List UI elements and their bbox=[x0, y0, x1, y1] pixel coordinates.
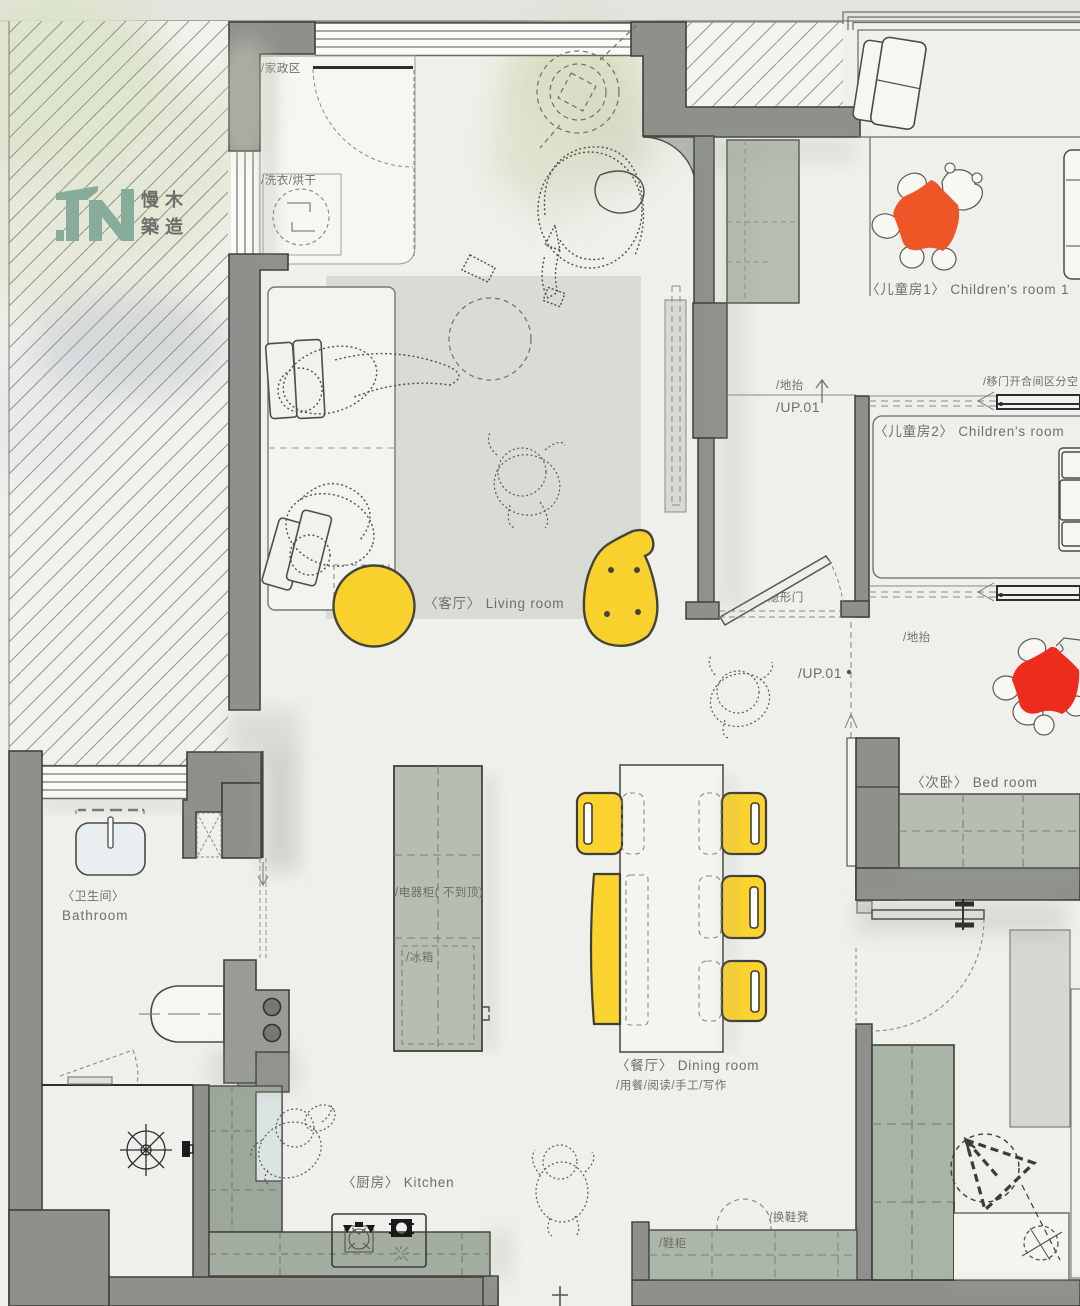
svg-text:〈儿童房2〉 Children's room: 〈儿童房2〉 Children's room bbox=[874, 423, 1064, 439]
svg-text:/移门开合间区分空: /移门开合间区分空 bbox=[983, 374, 1079, 388]
svg-text:Bathroom: Bathroom bbox=[62, 908, 129, 923]
svg-text:/鞋柜: /鞋柜 bbox=[659, 1236, 687, 1250]
svg-text:築造: 築造 bbox=[140, 216, 189, 237]
svg-text:〈客厅〉 Living room: 〈客厅〉 Living room bbox=[424, 595, 564, 611]
svg-text:/换鞋凳: /换鞋凳 bbox=[769, 1210, 809, 1224]
svg-text:/家政区: /家政区 bbox=[261, 61, 301, 75]
svg-text:〈餐厅〉 Dining room: 〈餐厅〉 Dining room bbox=[616, 1058, 759, 1073]
svg-text:〈次卧〉 Bed room: 〈次卧〉 Bed room bbox=[911, 775, 1038, 790]
svg-text:〈儿童房1〉 Children's room 1: 〈儿童房1〉 Children's room 1 bbox=[866, 281, 1069, 297]
svg-text:/UP.01: /UP.01 bbox=[776, 399, 820, 415]
svg-text:/UP.01: /UP.01 bbox=[798, 665, 842, 681]
svg-text:〈厨房〉 Kitchen: 〈厨房〉 Kitchen bbox=[342, 1175, 454, 1190]
svg-text:慢木: 慢木 bbox=[141, 189, 189, 210]
svg-text:/洗衣/烘干: /洗衣/烘干 bbox=[261, 173, 316, 187]
svg-text:/用餐/阅读/手工/写作: /用餐/阅读/手工/写作 bbox=[616, 1078, 727, 1092]
svg-text:/地抬: /地抬 bbox=[776, 378, 804, 392]
svg-text:/冰箱: /冰箱 bbox=[406, 950, 434, 964]
svg-text:〈卫生间〉: 〈卫生间〉 bbox=[62, 889, 125, 903]
svg-text:/电器柜( 不到顶): /电器柜( 不到顶) bbox=[395, 886, 483, 899]
svg-text:/地抬: /地抬 bbox=[903, 630, 931, 644]
